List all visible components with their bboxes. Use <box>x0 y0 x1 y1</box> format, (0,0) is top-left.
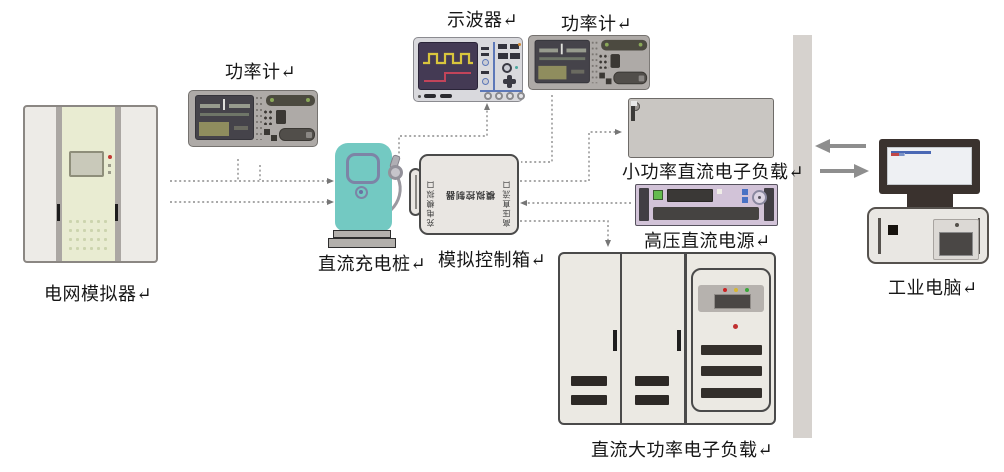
line-pile-to-oscilloscope <box>399 110 487 158</box>
waveform-red <box>424 73 471 81</box>
cabinet-right-section <box>691 268 771 412</box>
cabinet-display <box>714 294 751 309</box>
nav-pad-icon <box>503 79 516 84</box>
vent-slot <box>571 395 607 405</box>
meter-display <box>195 95 254 140</box>
grid-simulator-label: 电网模拟器↵ <box>44 280 152 306</box>
pile-button <box>355 186 368 199</box>
panel-trim <box>878 218 881 254</box>
line-powermeter2-to-controlbox <box>521 95 552 162</box>
gridsim-display <box>69 151 104 177</box>
power-button <box>653 190 663 200</box>
door-handle <box>613 330 617 351</box>
function-button <box>742 189 748 195</box>
hv-dc-supply-label: 高压直流电源↵ <box>644 227 771 253</box>
terminal-cluster <box>263 109 274 125</box>
usb-port <box>424 94 436 98</box>
arrowhead-right-icon <box>615 129 622 135</box>
display-cursor <box>223 99 225 110</box>
cabinet-control-panel <box>698 285 764 312</box>
separator-bar <box>793 35 812 438</box>
dc-high-power-load-label: 直流大功率电子负载↵ <box>591 436 773 462</box>
vent-slot <box>701 366 762 376</box>
panel-mark <box>108 164 111 167</box>
line-controlbox-to-bigload <box>520 221 608 240</box>
power-meter-top-illustration <box>528 35 650 90</box>
vent-slot <box>635 395 669 405</box>
scope-knob-icon <box>502 63 512 73</box>
vent-slot <box>701 345 762 355</box>
hv-dc-supply-illustration <box>635 184 778 226</box>
display-status-block <box>538 66 566 80</box>
control-box-label: 模拟控制箱↵ <box>438 246 546 272</box>
vent-slot <box>701 388 762 398</box>
supply-knob-icon <box>752 190 767 205</box>
waveform-yellow <box>423 54 473 63</box>
bnc-connector-icon <box>495 92 503 100</box>
bnc-connector-icon <box>506 92 514 100</box>
pc-touch-panel <box>933 219 979 260</box>
supply-keypad <box>717 189 739 208</box>
power-meter-top-label: 功率计↵ <box>561 10 632 36</box>
status-led-green <box>745 288 749 292</box>
scope-screen <box>418 42 478 90</box>
supply-lower-panel <box>653 207 759 220</box>
indicator-led <box>515 66 518 69</box>
test-system-diagram: 充电模拟口 模拟控制器 高压直流口 <box>0 0 1004 472</box>
oscilloscope-label: 示波器↵ <box>447 6 518 32</box>
charging-connector-icon <box>388 165 403 180</box>
port-label-left: 充电模拟口 <box>427 163 435 227</box>
industrial-pc-label: 工业电脑↵ <box>888 274 978 300</box>
controlbox-title: 模拟控制器 <box>443 189 497 202</box>
scope-knob-icon <box>482 59 489 66</box>
port-label-right: 高压直流口 <box>503 163 511 227</box>
terminal-caps <box>264 129 278 142</box>
display-text-row <box>200 113 249 116</box>
arrowhead-right-icon <box>327 199 334 205</box>
dc-high-power-load-illustration <box>558 252 776 425</box>
pc-monitor-screen <box>887 147 972 185</box>
vent-slot <box>571 376 607 386</box>
arrowhead-up-icon <box>484 103 490 110</box>
cabinet-trim <box>114 107 121 261</box>
supply-display <box>667 189 713 202</box>
power-meter-left-illustration <box>188 90 318 147</box>
oscilloscope-illustration <box>413 37 523 102</box>
status-led-red <box>723 288 727 292</box>
camera-dot-icon <box>955 223 959 227</box>
display-text-row <box>539 57 585 60</box>
scope-waveforms <box>419 43 477 89</box>
bnc-connector-icon <box>484 92 492 100</box>
display-text-row <box>200 104 220 108</box>
pc-base-unit-illustration <box>867 207 989 264</box>
function-button <box>742 197 748 203</box>
scope-button <box>498 44 507 49</box>
status-led-yellow <box>734 288 738 292</box>
pile-base <box>328 238 396 248</box>
panel-mark <box>108 171 111 174</box>
power-meter-left-label: 功率计↵ <box>225 58 296 84</box>
vent-dot-grid <box>67 217 111 255</box>
control-box-illustration: 充电模拟口 模拟控制器 高压直流口 <box>419 154 519 235</box>
monitor-stand <box>907 194 953 208</box>
small-dc-load-label: 小功率直流电子负载↵ <box>622 158 804 184</box>
terminal-bar-lower <box>613 72 647 85</box>
pile-screen <box>346 153 380 184</box>
door-handle <box>57 204 60 221</box>
terminal-bar-lower <box>279 128 315 141</box>
terminal-block <box>611 54 647 68</box>
scope-button <box>498 53 508 59</box>
cabinet-divider <box>684 254 687 423</box>
probe-dot <box>418 95 421 98</box>
scope-button <box>510 53 520 59</box>
vent-slot <box>635 376 669 386</box>
arrow-right-icon <box>854 164 869 178</box>
dc-charging-pile-illustration <box>335 143 392 231</box>
grid-simulator-illustration <box>23 105 158 263</box>
power-led <box>518 43 521 46</box>
terminal-bar <box>601 40 647 51</box>
vent-column <box>255 95 263 140</box>
arrowhead-left-icon <box>520 200 527 206</box>
display-text-row <box>566 49 586 53</box>
vent-column <box>591 40 599 83</box>
display-text-row <box>234 126 248 130</box>
terminal-bar <box>266 95 315 106</box>
indicator-led <box>108 155 112 159</box>
small-dc-load-illustration <box>628 98 774 158</box>
usb-port <box>440 94 452 98</box>
bnc-connector-icon <box>517 92 525 100</box>
pile-base <box>333 230 391 238</box>
emergency-button <box>733 324 738 329</box>
door-handle <box>677 330 681 351</box>
pc-monitor-illustration <box>879 139 980 194</box>
panel-divider <box>493 42 495 91</box>
meter-display <box>535 40 590 83</box>
pc-arrows <box>815 139 869 178</box>
scope-knob-icon <box>482 78 489 85</box>
display-status-block <box>199 122 229 136</box>
arrowhead-down-icon <box>605 240 611 247</box>
terminal-caps <box>599 73 612 86</box>
display-text-row <box>539 49 558 53</box>
rack-ear <box>639 188 649 221</box>
display-text-row <box>229 104 250 108</box>
terminal-block <box>276 110 314 124</box>
arrow-left-icon <box>815 139 830 153</box>
master-keypad <box>631 101 653 102</box>
display-cursor <box>561 44 563 55</box>
dc-charging-pile-label: 直流充电桩↵ <box>318 250 426 276</box>
line-controlbox-to-smallload <box>520 132 615 181</box>
door-handle <box>115 204 118 221</box>
cabinet-divider <box>620 254 622 423</box>
touch-screen <box>939 232 973 256</box>
terminal-cluster <box>598 53 608 68</box>
display-text-row <box>571 70 584 74</box>
arrowhead-right-icon <box>327 178 334 184</box>
